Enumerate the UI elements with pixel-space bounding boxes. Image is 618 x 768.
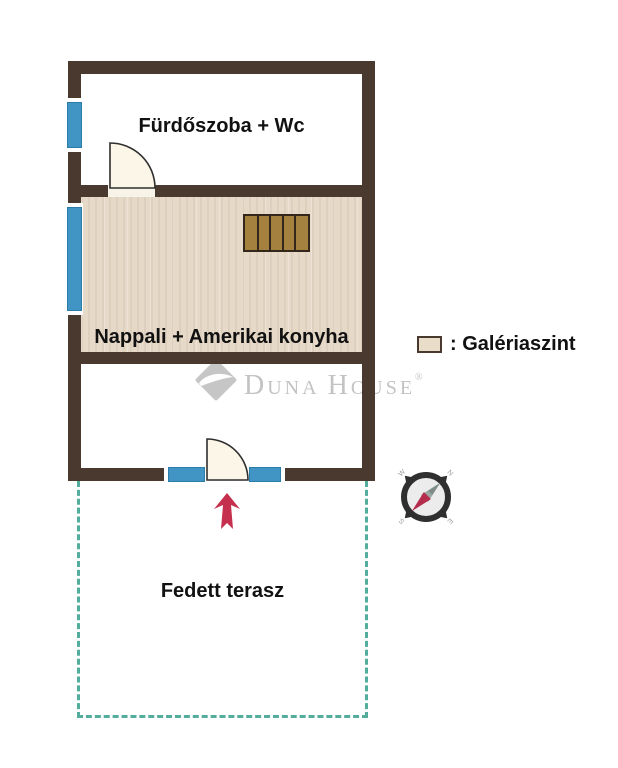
window xyxy=(245,466,285,483)
window xyxy=(66,203,83,315)
outer-wall-right xyxy=(362,61,375,481)
bathroom-doorway-gap xyxy=(108,185,155,197)
watermark-brand-text: DUNAHOUSE® xyxy=(244,363,423,405)
bathroom-label: Fürdőszoba + Wc xyxy=(81,115,362,138)
legend-gallery-swatch xyxy=(417,336,442,353)
watermark-letters: OUSE xyxy=(351,377,415,399)
watermark-letter: H xyxy=(328,370,351,401)
watermark-letter: D xyxy=(244,370,267,401)
terrace-label: Fedett terasz xyxy=(77,580,368,603)
window-pane xyxy=(249,467,281,482)
divider-wall-gallery-edge xyxy=(81,352,362,364)
watermark-letters: UNA xyxy=(267,377,319,399)
compass-letter-se: E xyxy=(445,517,453,525)
outer-wall-top xyxy=(68,61,375,74)
entrance-doorway-gap xyxy=(207,468,248,481)
window-pane xyxy=(67,207,82,311)
compass-letter-sw: S xyxy=(398,516,406,524)
living-room-label: Nappali + Amerikai konyha xyxy=(81,326,362,349)
compass-letter-ne: N xyxy=(445,469,454,478)
compass-icon: W N E S xyxy=(398,468,454,525)
legend-label: : Galériaszint xyxy=(450,333,576,356)
compass-letter-nw: W xyxy=(398,468,408,478)
window xyxy=(164,466,209,483)
window-pane xyxy=(168,467,205,482)
stairs-icon xyxy=(243,214,310,252)
registered-mark: ® xyxy=(415,372,423,383)
window-pane xyxy=(67,102,82,148)
